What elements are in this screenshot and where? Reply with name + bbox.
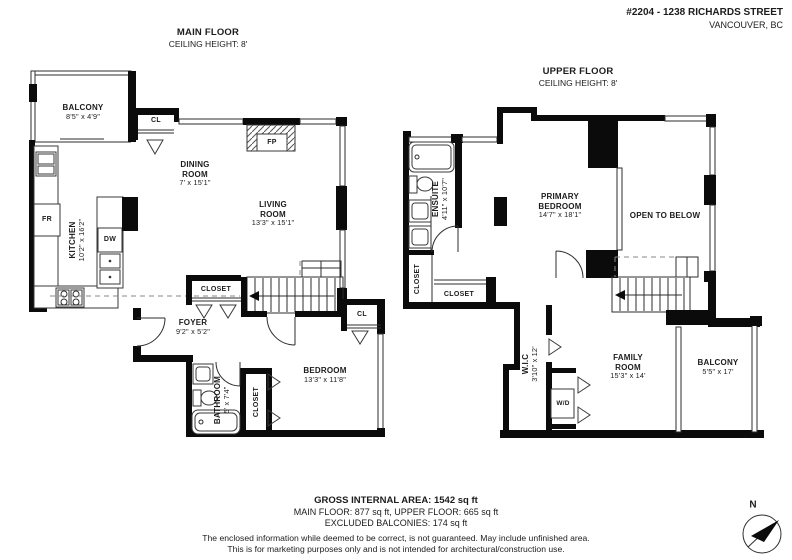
property-address: #2204 - 1238 RICHARDS STREET VANCOUVER, … bbox=[626, 7, 783, 31]
main-dining-label: DINING ROOM 7' x 15'1" bbox=[171, 160, 219, 188]
address-line1: #2204 - 1238 RICHARDS STREET bbox=[626, 7, 783, 20]
main-bedroom-closet-label: CL bbox=[357, 311, 367, 319]
upper-closet-horizontal-label: CLOSET bbox=[444, 291, 474, 299]
disclaimer: The enclosed information while deemed to… bbox=[0, 533, 792, 554]
area-summary: GROSS INTERNAL AREA: 1542 sq ft MAIN FLO… bbox=[0, 495, 792, 554]
upper-wic-label: W.I.C 3'10" x 12' bbox=[521, 346, 539, 382]
fridge-label: FR bbox=[42, 216, 52, 224]
north-label: N bbox=[749, 500, 756, 511]
open-to-below-label: OPEN TO BELOW bbox=[630, 211, 700, 221]
main-stairs bbox=[241, 261, 343, 313]
main-bedroom-closet-vertical-label: CLOSET bbox=[253, 387, 261, 417]
upper-stairs bbox=[612, 257, 698, 312]
upper-family-room-label: FAMILY ROOM 15'3" x 14' bbox=[604, 353, 652, 381]
floorplan-linework bbox=[0, 0, 792, 560]
disclaimer-line1: The enclosed information while deemed to… bbox=[0, 533, 792, 543]
floorplan-page: #2204 - 1238 RICHARDS STREET VANCOUVER, … bbox=[0, 0, 792, 560]
upper-wic-laundry bbox=[503, 305, 590, 438]
upper-closet-vertical-label: CLOSET bbox=[414, 264, 422, 294]
main-kitchen-label: KITCHEN 10'2" x 16'2" bbox=[68, 219, 86, 262]
gross-area-text: GROSS INTERNAL AREA: 1542 sq ft bbox=[0, 495, 792, 507]
main-balcony-label: BALCONY 8'5" x 4'9" bbox=[48, 103, 118, 121]
main-right-wall-windows bbox=[336, 126, 347, 316]
washer-dryer-label: W/D bbox=[556, 400, 569, 408]
disclaimer-line2: This is for marketing purposes only and … bbox=[0, 544, 792, 554]
upper-balcony-label: BALCONY 5'5" x 17' bbox=[685, 358, 751, 376]
main-entry-closet bbox=[133, 108, 179, 154]
main-foyer-closet-label: CLOSET bbox=[201, 286, 231, 294]
upper-primary-bedroom-label: PRIMARY BEDROOM 14'7" x 18'1" bbox=[531, 192, 589, 220]
upper-ensuite-label: ENSUITE 4'11" x 10'7" bbox=[431, 178, 449, 220]
main-closet-top-label: CL bbox=[151, 117, 161, 125]
main-living-label: LIVING ROOM 13'3" x 15'1" bbox=[249, 200, 297, 228]
floor-areas-text: MAIN FLOOR: 877 sq ft, UPPER FLOOR: 665 … bbox=[0, 507, 792, 518]
main-foyer-label: FOYER 9'2" x 5'2" bbox=[158, 318, 228, 336]
main-floor-title: MAIN FLOOR CEILING HEIGHT: 8' bbox=[169, 27, 248, 50]
dishwasher-label: DW bbox=[104, 236, 116, 244]
main-bathroom-label: BATHROOM 5' x 7'4" bbox=[213, 376, 231, 424]
upper-bedroom-elements bbox=[494, 168, 622, 278]
address-line2: VANCOUVER, BC bbox=[626, 20, 783, 31]
main-bedroom-label: BEDROOM 13'3" x 11'8" bbox=[285, 366, 365, 384]
upper-floor-plan bbox=[403, 107, 764, 438]
excluded-balconies-text: EXCLUDED BALCONIES: 174 sq ft bbox=[0, 518, 792, 529]
fireplace-label: FP bbox=[267, 139, 277, 147]
upper-floor-title: UPPER FLOOR CEILING HEIGHT: 8' bbox=[539, 66, 618, 89]
